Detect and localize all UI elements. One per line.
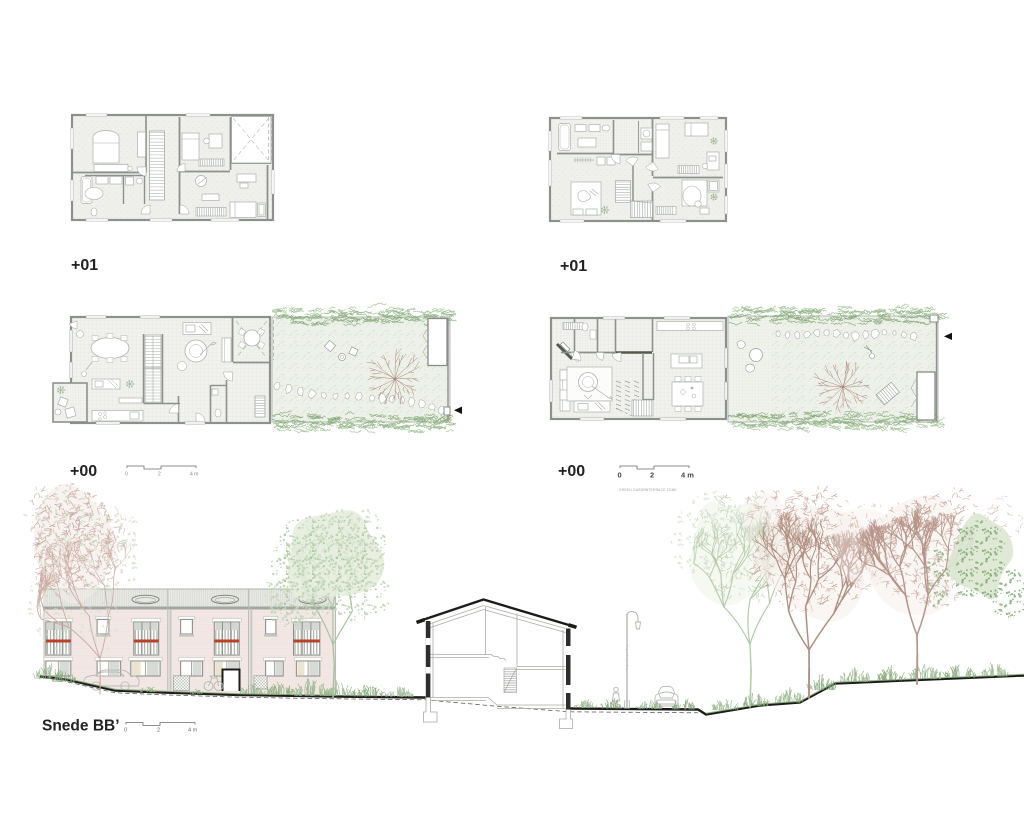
svg-text:+01: +01 bbox=[71, 257, 98, 274]
svg-text:4 m: 4 m bbox=[190, 472, 198, 478]
svg-text:4 m: 4 m bbox=[681, 471, 694, 480]
svg-text:0: 0 bbox=[618, 471, 622, 480]
svg-text:Snede BB’: Snede BB’ bbox=[42, 718, 120, 735]
svg-text:2: 2 bbox=[650, 471, 654, 480]
svg-text:0: 0 bbox=[124, 728, 127, 734]
svg-text:+00: +00 bbox=[70, 463, 97, 480]
svg-text:0: 0 bbox=[125, 472, 128, 478]
svg-text:+ TERRACE ZONE: + TERRACE ZONE bbox=[645, 488, 677, 492]
svg-text:+01: +01 bbox=[560, 258, 587, 275]
svg-text:2: 2 bbox=[157, 728, 160, 734]
svg-text:+00: +00 bbox=[558, 463, 585, 480]
svg-text:2: 2 bbox=[158, 472, 161, 478]
svg-text:4 m: 4 m bbox=[188, 728, 198, 734]
